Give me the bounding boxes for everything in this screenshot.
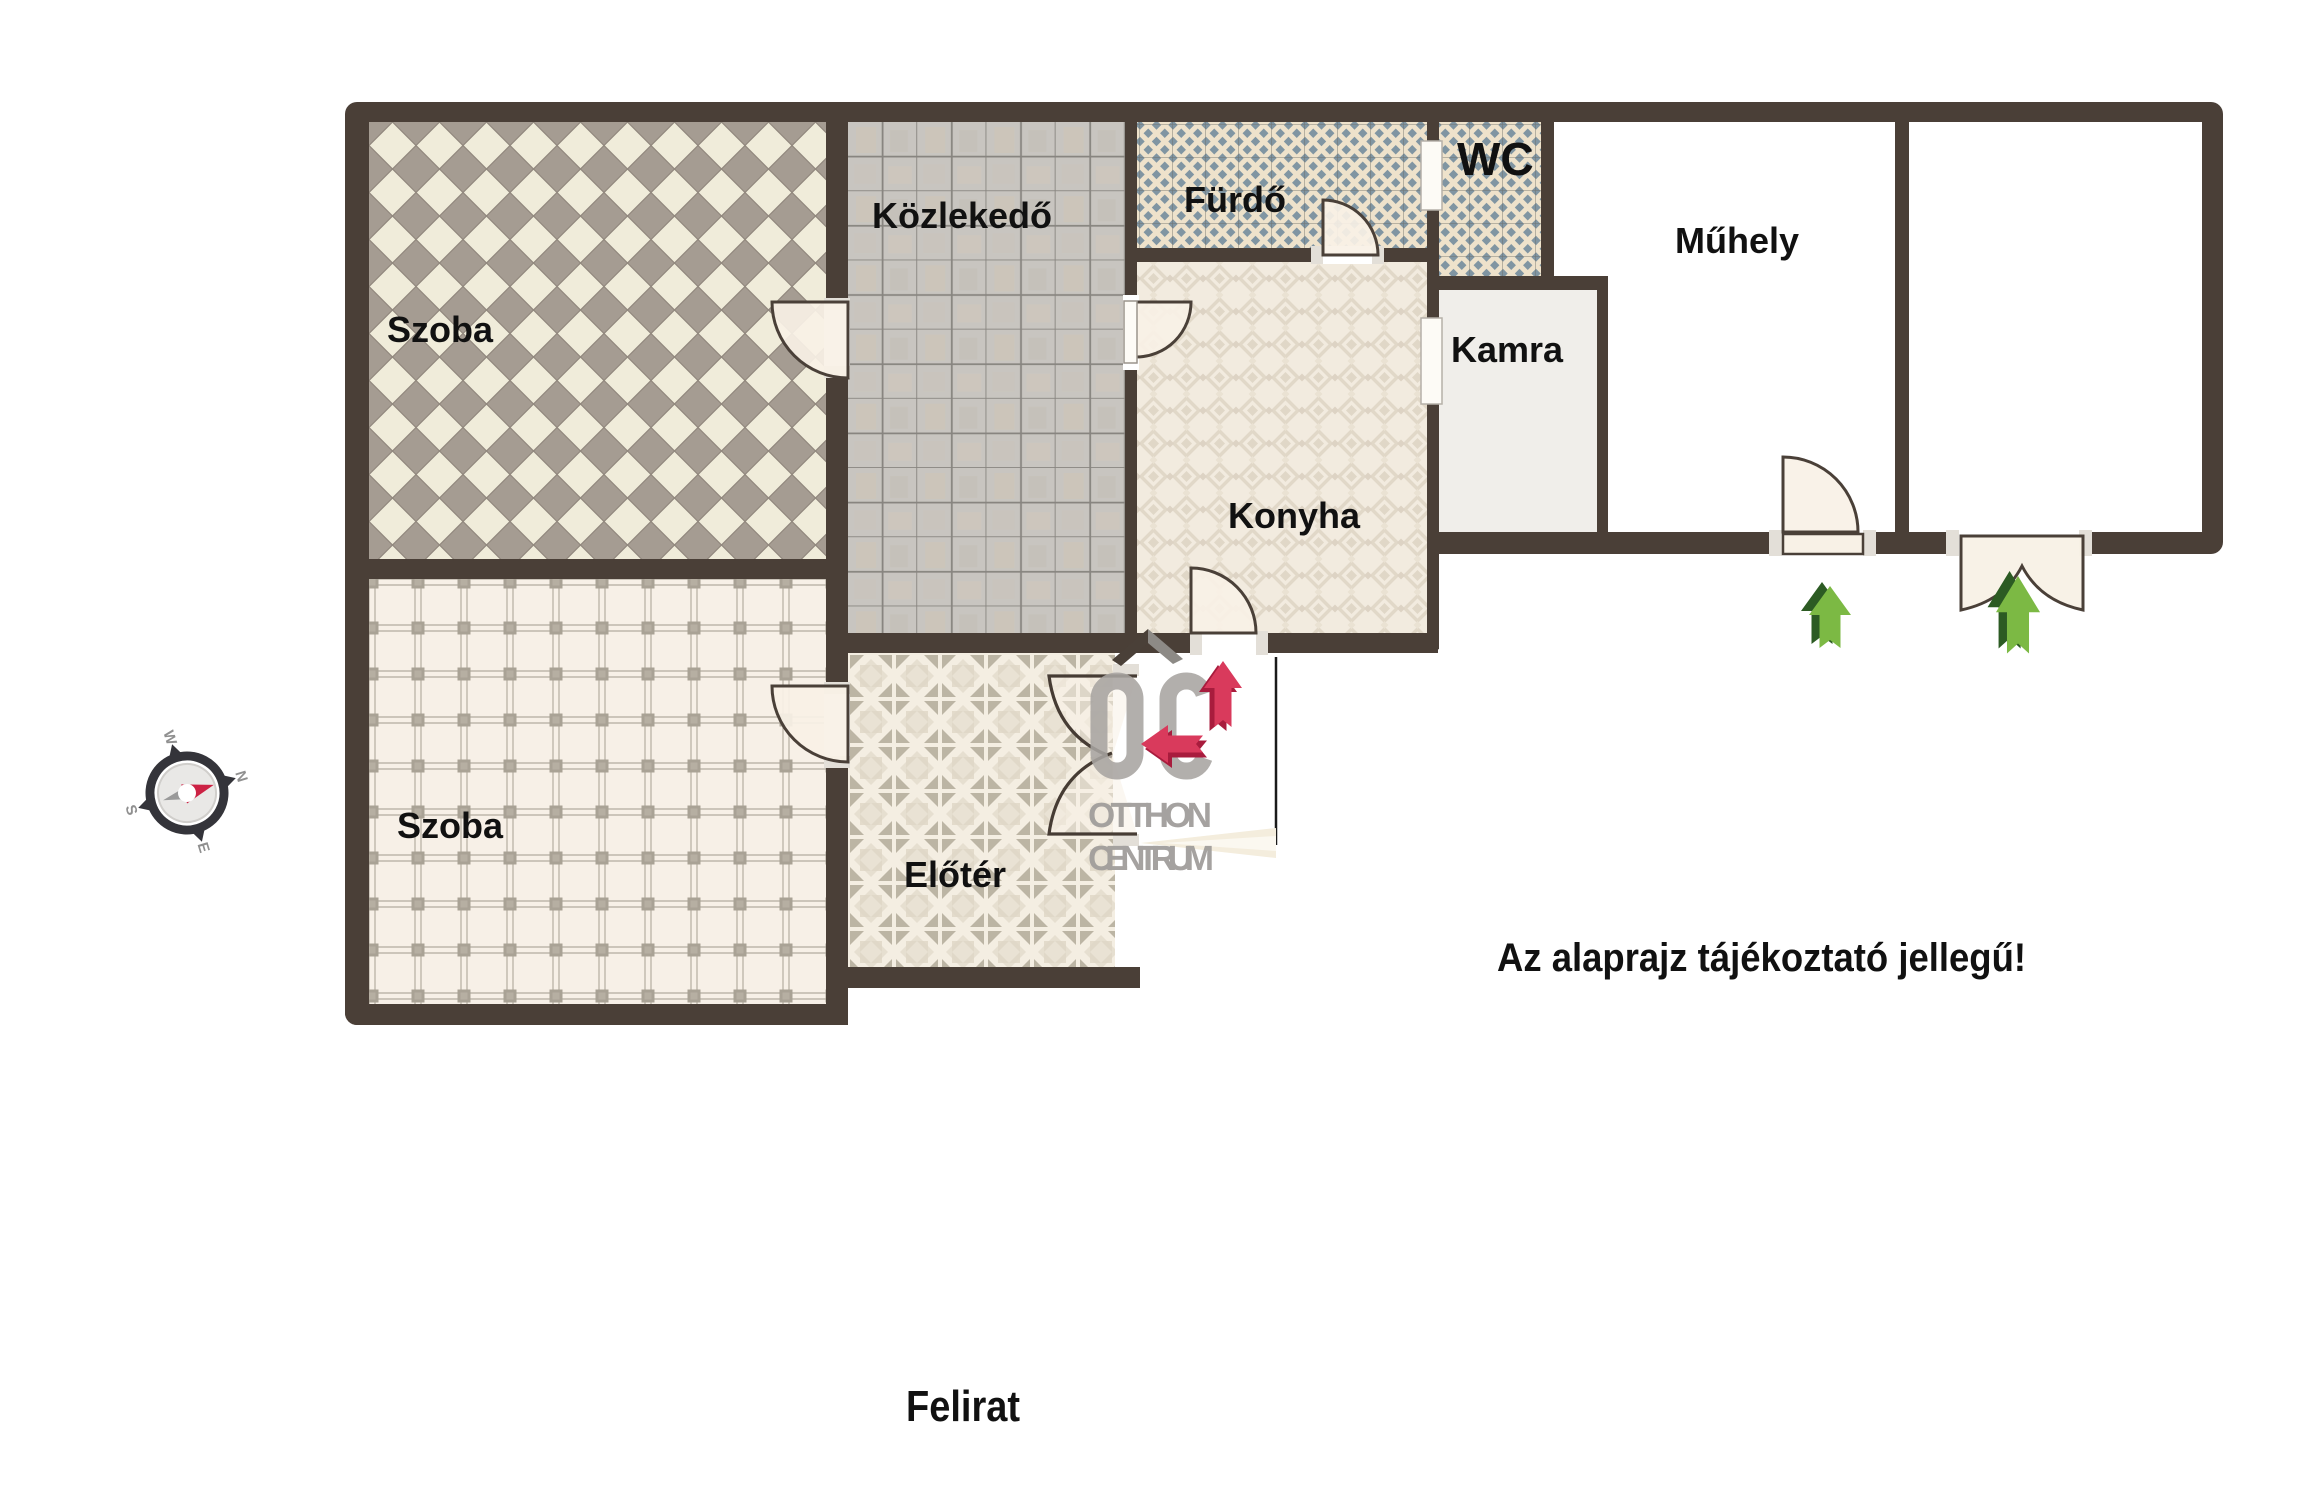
svg-text:Szoba: Szoba bbox=[387, 309, 494, 350]
svg-text:Az alaprajz tájékoztató jelleg: Az alaprajz tájékoztató jellegű! bbox=[1497, 936, 2026, 980]
svg-text:OTTHON: OTTHON bbox=[1088, 796, 1212, 835]
svg-text:Szoba: Szoba bbox=[397, 805, 504, 846]
svg-text:Előtér: Előtér bbox=[904, 854, 1006, 895]
svg-text:Műhely: Műhely bbox=[1675, 220, 1799, 261]
svg-text:Kamra: Kamra bbox=[1451, 329, 1564, 370]
svg-text:Konyha: Konyha bbox=[1228, 495, 1361, 536]
svg-text:WC: WC bbox=[1457, 133, 1534, 185]
svg-text:Felirat: Felirat bbox=[906, 1382, 1020, 1431]
svg-text:Közlekedő: Közlekedő bbox=[872, 195, 1052, 236]
svg-text:CENTRUM: CENTRUM bbox=[1088, 839, 1214, 878]
svg-text:Fürdő: Fürdő bbox=[1184, 179, 1286, 220]
